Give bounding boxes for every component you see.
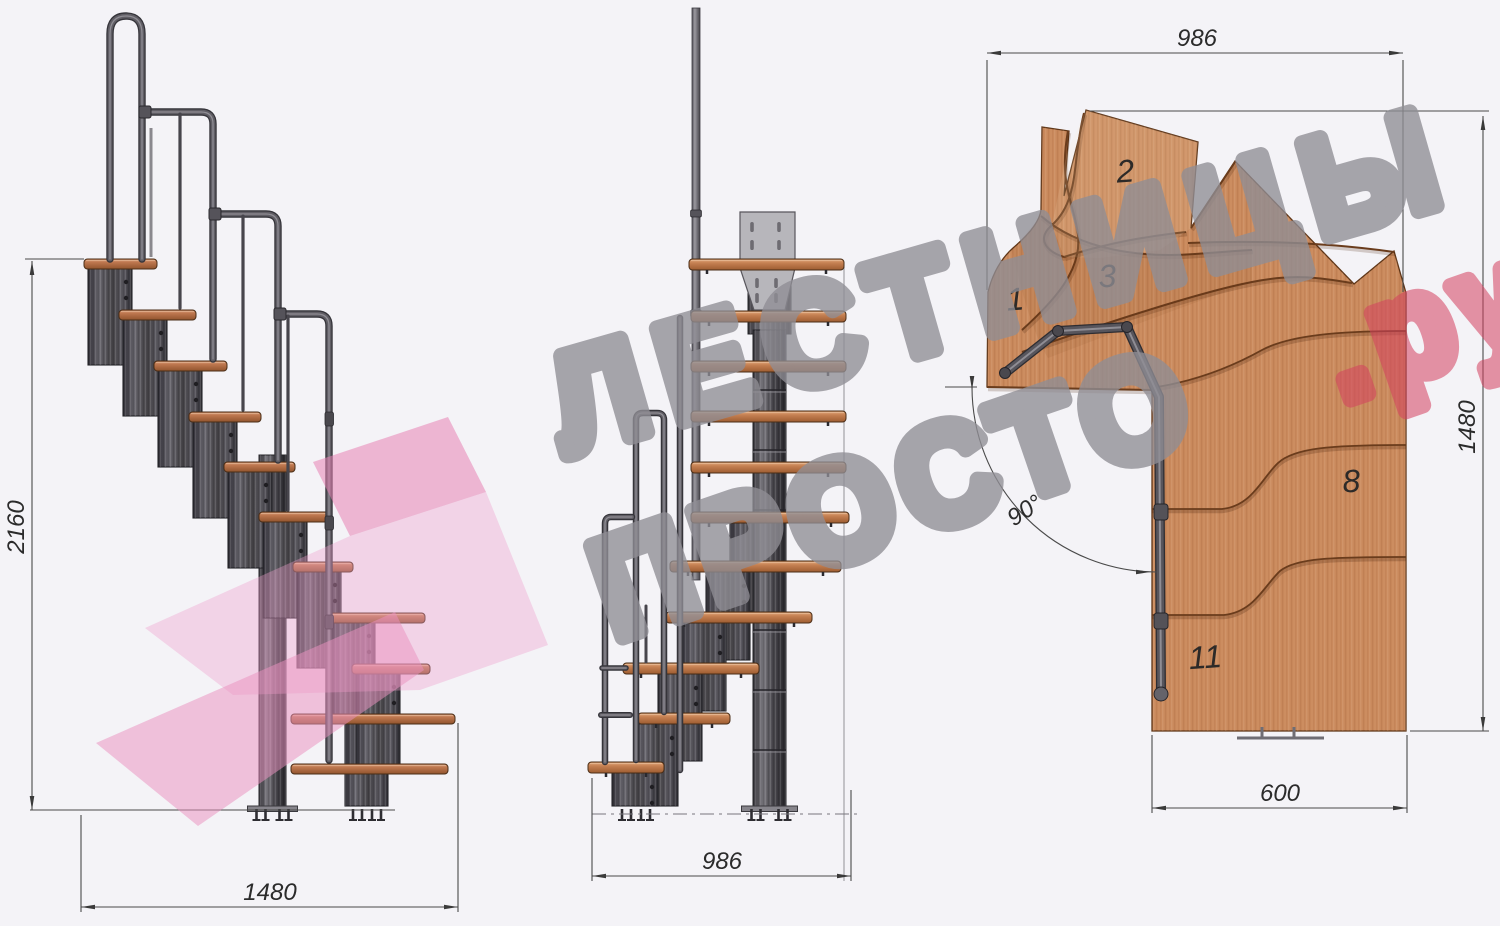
svg-text:986: 986 [1177, 25, 1218, 52]
svg-text:1480: 1480 [1454, 400, 1481, 454]
svg-text:11: 11 [1187, 638, 1223, 676]
svg-text:8: 8 [1341, 462, 1361, 499]
svg-text:1480: 1480 [243, 879, 297, 906]
svg-text:600: 600 [1260, 780, 1301, 807]
svg-text:986: 986 [702, 848, 743, 875]
svg-text:2160: 2160 [3, 500, 30, 555]
